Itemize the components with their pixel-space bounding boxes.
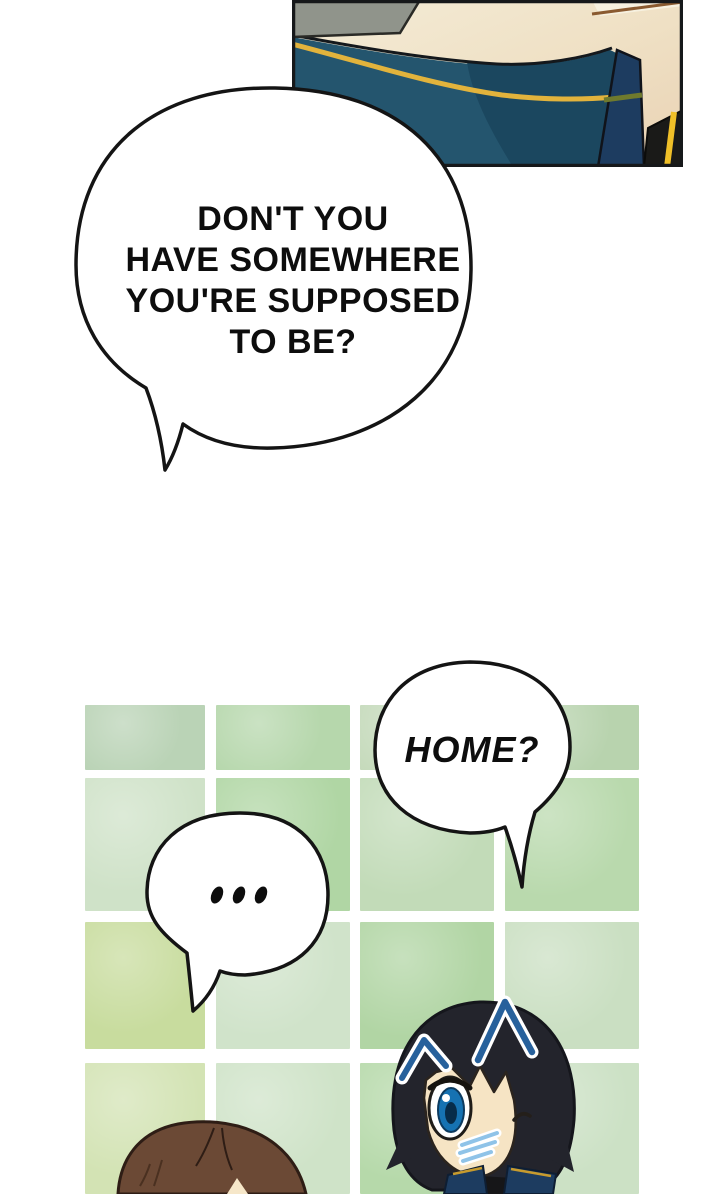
boy-eye-highlight xyxy=(442,1094,450,1102)
webtoon-page: DON'T YOU HAVE SOMEWHERE YOU'RE SUPPOSED… xyxy=(0,0,720,1194)
speech-bubble-home-text: HOME? xyxy=(372,729,572,771)
speech-line: HAVE SOMEWHERE xyxy=(93,240,493,281)
brown-hair-character xyxy=(118,1122,306,1194)
speech-bubble-home xyxy=(365,655,575,900)
chibi-boy xyxy=(386,1002,574,1194)
wall-tile xyxy=(216,705,350,770)
characters xyxy=(0,960,720,1194)
boy-pupil xyxy=(445,1102,457,1124)
speech-line: TO BE? xyxy=(93,322,493,363)
wall-tile xyxy=(85,705,205,770)
speech-bubble-home-shape xyxy=(375,662,570,887)
speech-line: YOU'RE SUPPOSED xyxy=(93,281,493,322)
ellipsis-dots xyxy=(208,885,269,906)
speech-bubble-main-text: DON'T YOU HAVE SOMEWHERE YOU'RE SUPPOSED… xyxy=(93,199,493,363)
speech-line: DON'T YOU xyxy=(93,199,493,240)
